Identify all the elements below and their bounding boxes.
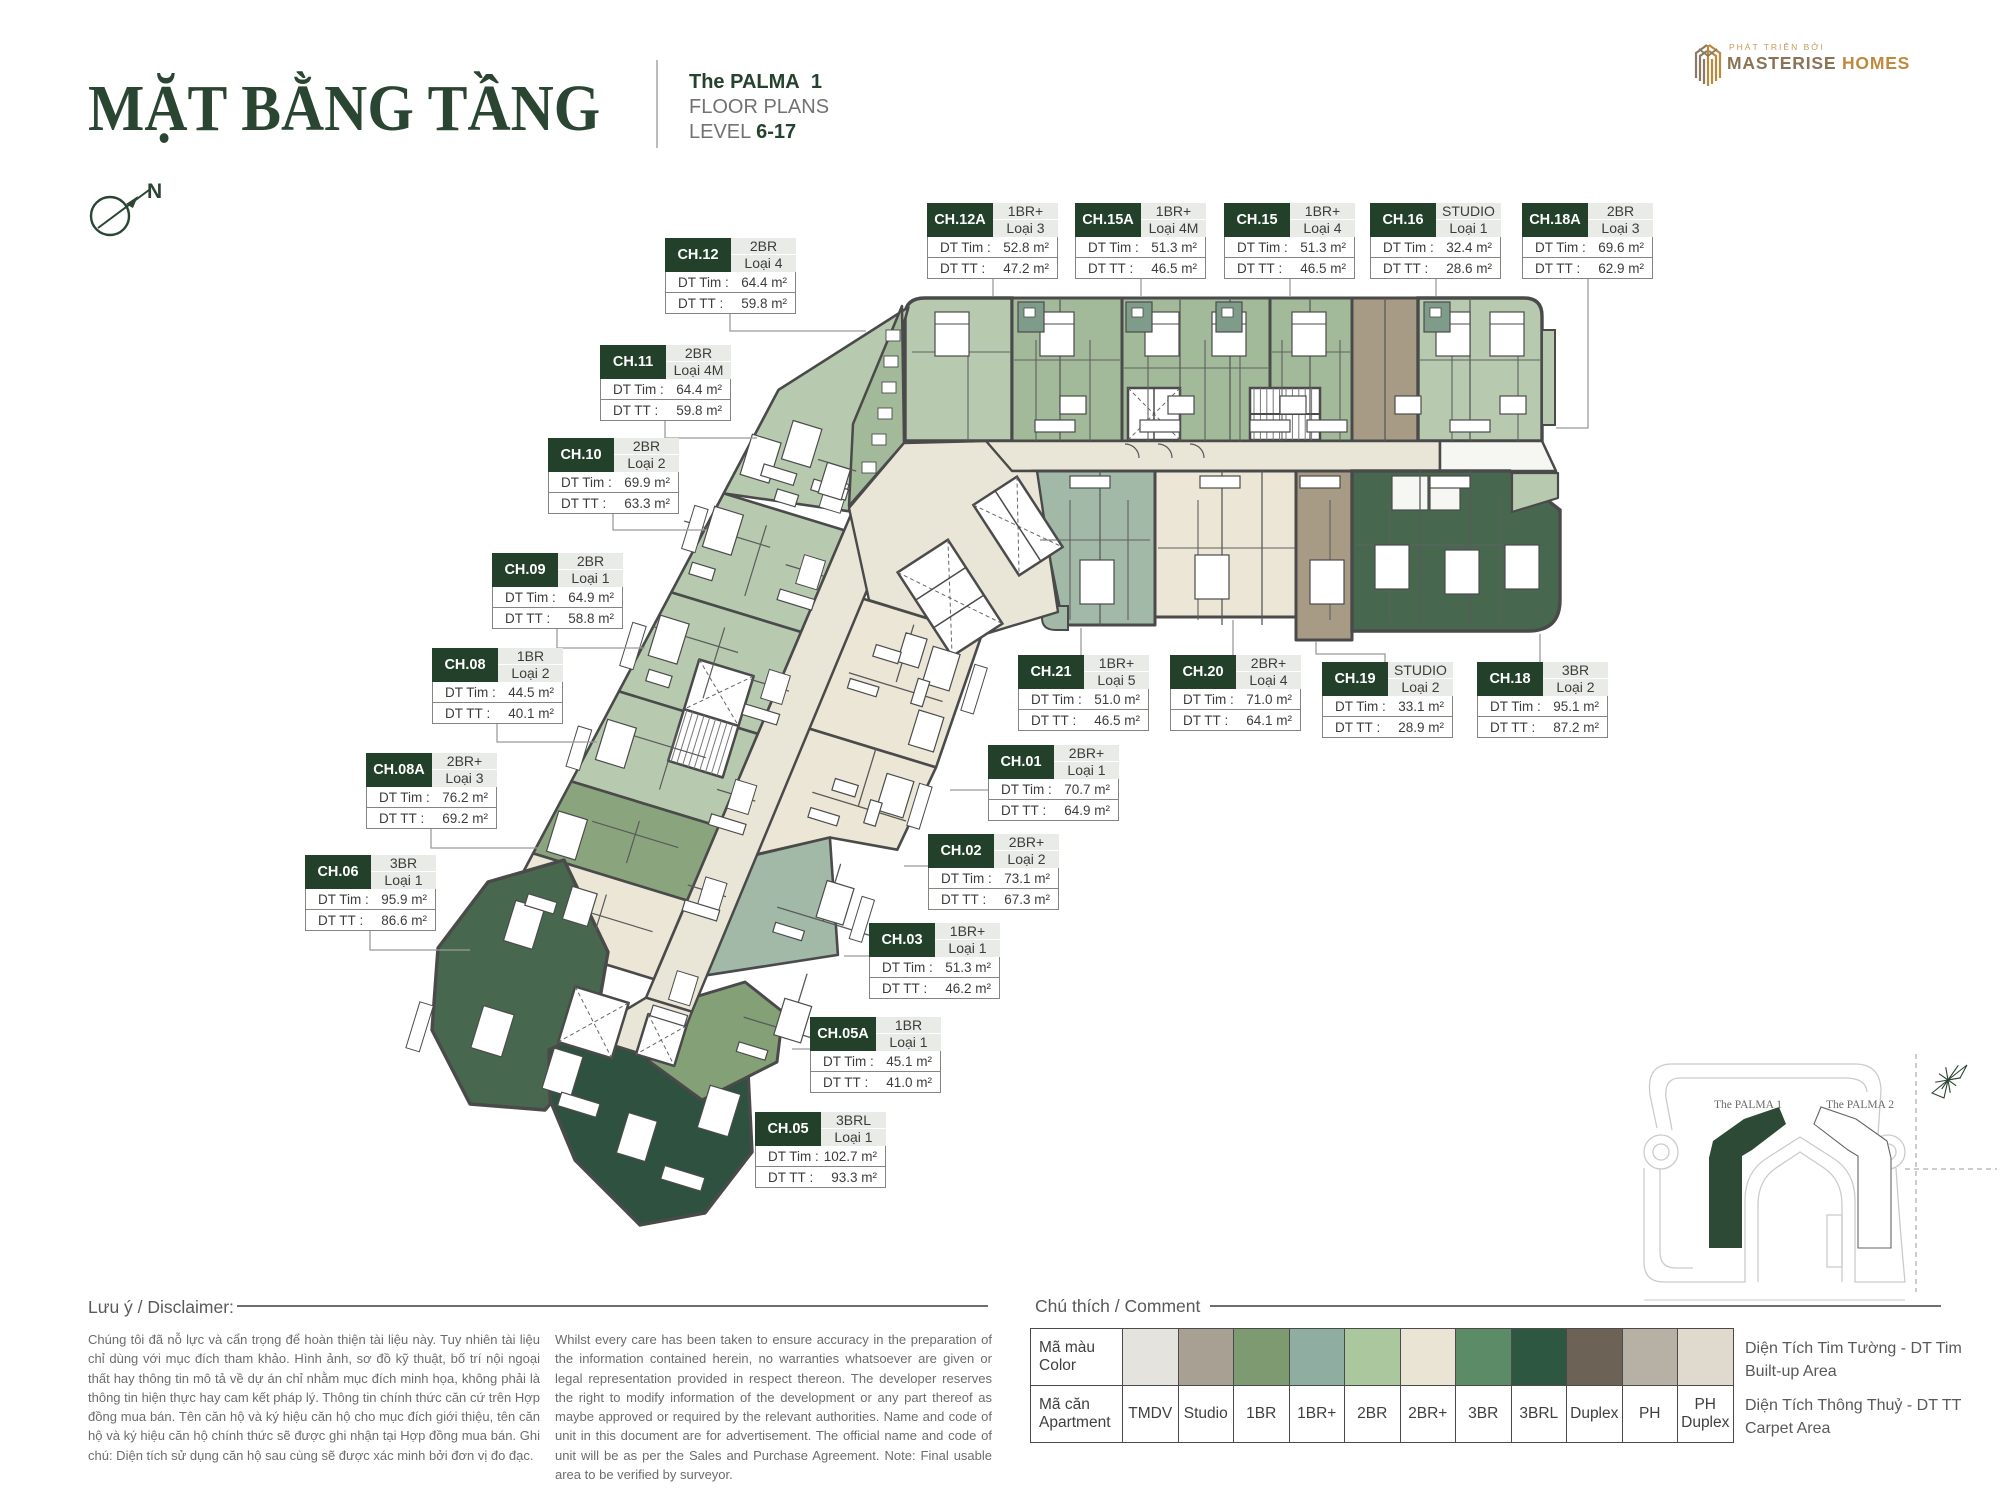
- svg-text:The PALMA 2: The PALMA 2: [1826, 1099, 1894, 1111]
- svg-text:N: N: [147, 180, 162, 203]
- svg-text:The PALMA 1: The PALMA 1: [1714, 1099, 1782, 1111]
